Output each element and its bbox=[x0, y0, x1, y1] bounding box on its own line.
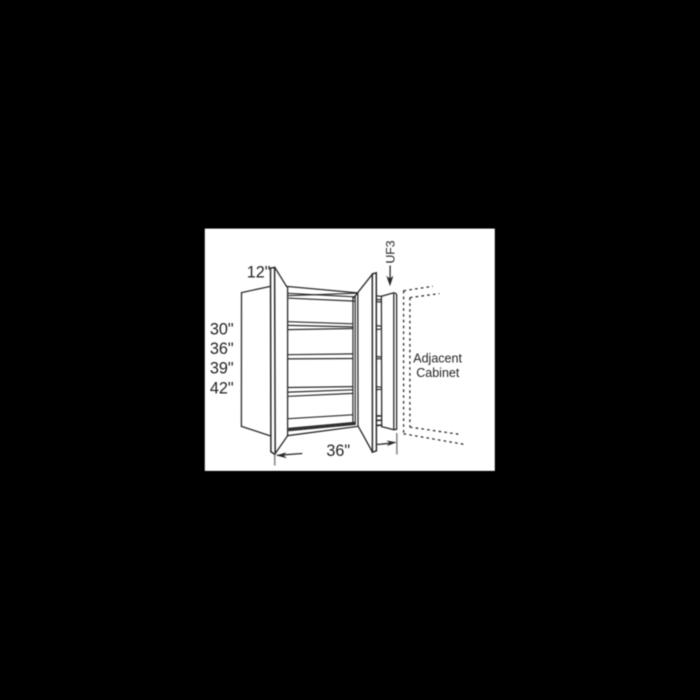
svg-text:39": 39" bbox=[210, 360, 234, 378]
svg-text:12": 12" bbox=[247, 264, 271, 282]
svg-text:30": 30" bbox=[210, 320, 234, 338]
svg-text:Cabinet: Cabinet bbox=[416, 366, 460, 380]
svg-text:36": 36" bbox=[326, 442, 350, 460]
svg-text:36": 36" bbox=[210, 340, 234, 358]
svg-text:UF3: UF3 bbox=[384, 240, 398, 263]
svg-text:Adjacent: Adjacent bbox=[413, 351, 462, 365]
svg-text:42": 42" bbox=[210, 380, 234, 398]
